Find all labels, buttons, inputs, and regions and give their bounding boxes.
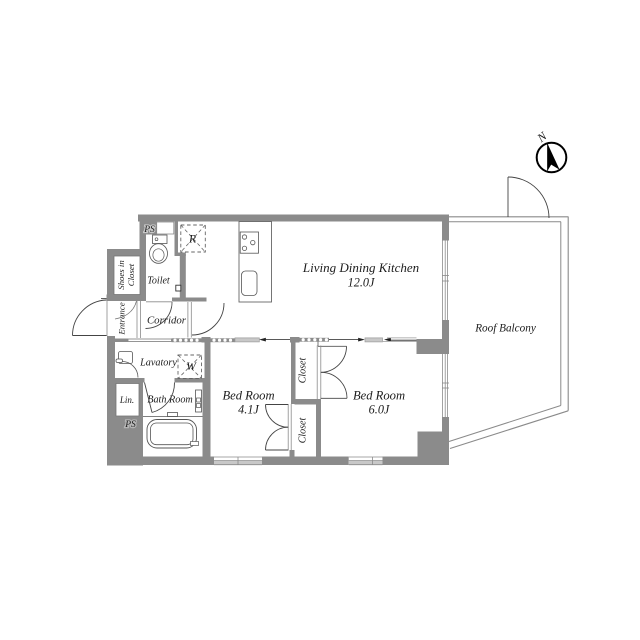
- svg-text:Entrance: Entrance: [117, 302, 127, 335]
- svg-text:4.1J: 4.1J: [238, 403, 259, 417]
- svg-text:Closet: Closet: [298, 358, 309, 384]
- svg-text:Roof Balcony: Roof Balcony: [474, 323, 536, 335]
- svg-text:PS: PS: [124, 420, 136, 430]
- svg-text:R: R: [188, 234, 196, 246]
- svg-text:Lin.: Lin.: [119, 395, 134, 405]
- svg-text:Bath Room: Bath Room: [147, 395, 193, 406]
- svg-text:6.0J: 6.0J: [369, 403, 390, 417]
- svg-text:Closet: Closet: [126, 263, 136, 286]
- svg-text:Corridor: Corridor: [147, 315, 187, 327]
- svg-text:Closet: Closet: [298, 418, 309, 444]
- svg-text:W: W: [186, 361, 197, 373]
- svg-text:Shoes in: Shoes in: [116, 260, 126, 290]
- svg-text:Living Dining Kitchen: Living Dining Kitchen: [302, 260, 419, 275]
- svg-text:Toilet: Toilet: [147, 276, 170, 287]
- svg-text:12.0J: 12.0J: [348, 276, 375, 290]
- svg-text:Lavatory: Lavatory: [139, 358, 177, 369]
- svg-text:Bed Room: Bed Room: [353, 389, 405, 403]
- svg-text:PS: PS: [143, 225, 155, 235]
- svg-text:Bed Room: Bed Room: [222, 389, 274, 403]
